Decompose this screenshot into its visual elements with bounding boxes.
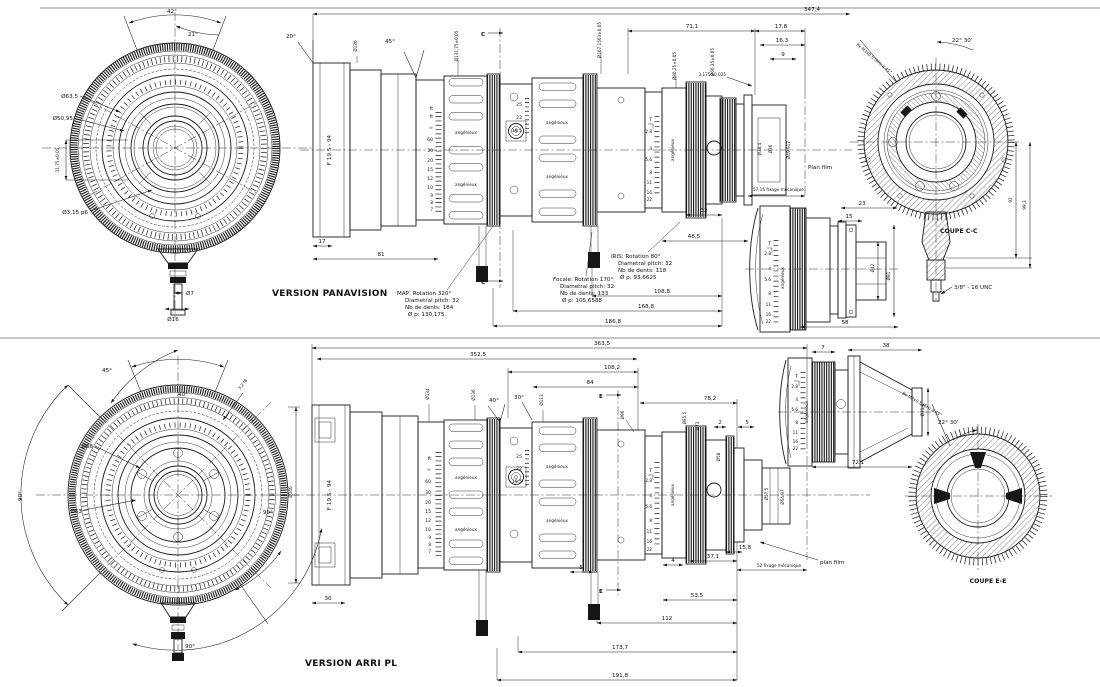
brand-logo: angénieux xyxy=(455,130,478,135)
svg-text:Ø36: Ø36 xyxy=(768,144,773,153)
zoom-ring-windows-b: angénieux angénieux xyxy=(539,427,576,559)
svg-text:92: 92 xyxy=(1008,197,1013,203)
svg-text:ft: ft xyxy=(430,114,434,120)
svg-text:Ø107,1563±0,05: Ø107,1563±0,05 xyxy=(597,22,602,58)
svg-text:30: 30 xyxy=(427,148,433,154)
front-dia-63-5: Ø63,5 xyxy=(61,93,78,100)
svg-text:Diametral pitch: 32: Diametral pitch: 32 xyxy=(560,284,614,290)
svg-text:32: 32 xyxy=(700,208,707,214)
top-dimension-chain: 347,4 71,1 17,8 16,3 9 3,175±0,025 xyxy=(313,7,850,95)
svg-text:5: 5 xyxy=(745,420,749,426)
svg-text:10: 10 xyxy=(425,527,431,533)
svg-text:45°: 45° xyxy=(385,39,395,45)
svg-text:7: 7 xyxy=(430,207,433,212)
svg-text:8: 8 xyxy=(649,518,652,523)
arri-angle-90-bottom: 90° xyxy=(185,644,195,650)
svg-text:20°: 20° xyxy=(286,34,296,40)
svg-text:53,5: 53,5 xyxy=(691,593,704,599)
svg-text:71,1: 71,1 xyxy=(686,24,699,30)
svg-text:8: 8 xyxy=(768,291,771,296)
svg-text:52 fixage mécanique: 52 fixage mécanique xyxy=(757,563,802,568)
svg-text:Ø49,917: Ø49,917 xyxy=(786,141,791,159)
svg-text:4: 4 xyxy=(649,493,652,498)
front-dia-50-95: Ø50,95 xyxy=(53,115,74,122)
front-dia-3-15: Ø3,15 p6 xyxy=(62,209,88,216)
svg-text:12: 12 xyxy=(425,518,431,524)
front-dia-16: Ø16 xyxy=(167,316,179,323)
svg-text:Ø85,5: Ø85,5 xyxy=(682,411,687,424)
svg-text:Ø80,25±0,05: Ø80,25±0,05 xyxy=(672,52,677,80)
svg-text:Ø63: Ø63 xyxy=(70,508,82,515)
svg-text:16: 16 xyxy=(766,312,772,317)
drawing-canvas: 42° 21° Ø63,5 Ø50,95 31,75±0,05 Ø3,15 p6… xyxy=(0,0,1100,687)
plan-film-label: Plan film xyxy=(808,165,832,171)
svg-text:58: 58 xyxy=(841,320,849,326)
svg-text:37,1: 37,1 xyxy=(707,554,720,560)
svg-text:38: 38 xyxy=(882,343,890,349)
svg-text:186,8: 186,8 xyxy=(605,319,621,325)
svg-text:22° 30': 22° 30' xyxy=(952,38,972,44)
svg-text:15: 15 xyxy=(845,214,853,220)
focus-distance-scale-b: ft ∞ 60 30 20 15 12 10 9 8 7 xyxy=(425,456,431,554)
zoom-focal-scale-b: 25 22 19.5 xyxy=(512,450,527,486)
front-angle-21: 21° xyxy=(188,32,198,38)
svg-text:25: 25 xyxy=(516,454,522,460)
svg-text:Ø38,4: Ø38,4 xyxy=(757,142,762,155)
svg-text:22° 30': 22° 30' xyxy=(938,420,958,426)
svg-text:Ø57,5: Ø57,5 xyxy=(764,487,769,500)
svg-text:8: 8 xyxy=(430,200,433,205)
lens-technical-drawing: 42° 21° Ø63,5 Ø50,95 31,75±0,05 Ø3,15 p6… xyxy=(0,0,1100,687)
panavision-front-view: 42° 21° Ø63,5 Ø50,95 31,75±0,05 Ø3,15 p6… xyxy=(42,9,312,323)
svg-text:4: 4 xyxy=(795,397,798,402)
svg-text:Diametral pitch: 32: Diametral pitch: 32 xyxy=(405,298,459,304)
svg-text:30: 30 xyxy=(324,596,332,602)
svg-text:4: 4 xyxy=(768,266,771,271)
svg-text:8: 8 xyxy=(649,170,652,175)
focale-gear-note: Focale: Rotation 170° Diametral pitch: 3… xyxy=(553,232,614,304)
svg-text:9: 9 xyxy=(428,535,431,540)
arri-angle-90-right: 90° xyxy=(263,510,273,516)
front-angle-42: 42° xyxy=(167,9,177,15)
svg-text:10: 10 xyxy=(427,185,433,191)
coupe-e-e-view: 8x M2x0.5 (6H) à 45° 22° 30' COUPE E-E xyxy=(902,391,1053,585)
svg-text:99,3: 99,3 xyxy=(1022,200,1027,210)
iris-gear-note: IRIS: Rotation 80° Diametral pitch: 32 N… xyxy=(611,222,680,281)
svg-text:191,8: 191,8 xyxy=(612,673,628,679)
svg-text:2: 2 xyxy=(718,420,722,426)
svg-text:84: 84 xyxy=(586,380,594,386)
svg-text:plan film: plan film xyxy=(820,560,844,566)
brand-logo: angénieux xyxy=(455,182,478,187)
svg-text:4: 4 xyxy=(671,558,675,564)
svg-text:Ø p: 130,175: Ø p: 130,175 xyxy=(408,311,445,318)
svg-text:C: C xyxy=(481,32,485,38)
svg-text:9: 9 xyxy=(781,52,785,58)
svg-text:22: 22 xyxy=(647,547,653,552)
svg-text:16: 16 xyxy=(647,190,653,195)
svg-text:108,8: 108,8 xyxy=(654,289,670,295)
svg-text:T: T xyxy=(648,468,652,474)
svg-text:112: 112 xyxy=(662,616,673,622)
svg-text:2.8: 2.8 xyxy=(645,129,652,134)
svg-text:9: 9 xyxy=(430,193,433,198)
svg-text:5.6: 5.6 xyxy=(645,157,652,162)
svg-text:30: 30 xyxy=(425,490,431,496)
svg-text:17,8: 17,8 xyxy=(775,24,788,30)
svg-text:22: 22 xyxy=(793,446,799,451)
svg-text:23: 23 xyxy=(858,201,866,207)
svg-text:72,1: 72,1 xyxy=(852,460,865,466)
svg-text:Ø66,35±0,05: Ø66,35±0,05 xyxy=(710,48,715,76)
svg-text:Ø131,75±0,05: Ø131,75±0,05 xyxy=(454,30,459,61)
svg-text:Ø136: Ø136 xyxy=(353,40,358,52)
focus-ring-windows: angénieux angénieux xyxy=(449,79,483,220)
brand-logo: angénieux xyxy=(670,138,675,161)
svg-text:20: 20 xyxy=(425,500,431,506)
svg-text:2.8: 2.8 xyxy=(764,251,771,256)
svg-text:11: 11 xyxy=(647,180,653,185)
svg-text:Ø134: Ø134 xyxy=(425,388,430,400)
svg-text:Diametral pitch: 32: Diametral pitch: 32 xyxy=(618,261,672,267)
svg-text:∞: ∞ xyxy=(427,468,431,473)
brand-logo: angénieux xyxy=(455,475,478,480)
svg-text:22: 22 xyxy=(516,466,522,472)
svg-text:3/8" - 16 UNC: 3/8" - 16 UNC xyxy=(954,285,992,291)
top-dimension-chain-b: 363,5 352,5 108,2 84 78,2 2 5 xyxy=(312,341,807,448)
svg-text:25: 25 xyxy=(516,102,522,108)
brand-logo: angénieux xyxy=(546,174,569,179)
svg-text:E: E xyxy=(599,589,603,595)
arri-rear-detail-view: T 2.8 4 5.6 8 11 16 22 angénieux 7 38 72… xyxy=(778,343,938,468)
svg-text:352,5: 352,5 xyxy=(470,352,486,358)
iris-t-scale-b: T 2.8 4 5.6 8 11 16 22 xyxy=(645,468,653,552)
svg-text:Ø81: Ø81 xyxy=(886,271,891,280)
svg-text:Nb de dents: 133: Nb de dents: 133 xyxy=(560,291,609,297)
svg-text:347,4: 347,4 xyxy=(804,7,820,13)
svg-text:5.6: 5.6 xyxy=(645,504,652,509)
section-e-markers: E E xyxy=(599,390,621,596)
svg-text:8: 8 xyxy=(795,420,798,425)
svg-text:57,15 fixage mécanique: 57,15 fixage mécanique xyxy=(753,187,804,192)
svg-text:IRIS: Rotation 80°: IRIS: Rotation 80° xyxy=(611,254,661,260)
svg-text:22: 22 xyxy=(766,319,772,324)
model-marking: F 19.5 - 94 xyxy=(327,479,333,510)
svg-text:Ø68: Ø68 xyxy=(81,443,93,450)
arri-angle-45: 45° xyxy=(102,368,112,374)
svg-text:MAP: Rotation 320°: MAP: Rotation 320° xyxy=(397,291,452,297)
brand-logo: angénieux xyxy=(546,518,569,523)
svg-text:22: 22 xyxy=(647,197,653,202)
svg-text:Nb de dents: 118: Nb de dents: 118 xyxy=(618,268,667,274)
svg-text:168,8: 168,8 xyxy=(638,304,654,310)
svg-text:48,5: 48,5 xyxy=(688,234,701,240)
svg-text:COUPE E-E: COUPE E-E xyxy=(970,578,1007,585)
svg-text:4: 4 xyxy=(649,146,652,151)
svg-text:COUPE C-C: COUPE C-C xyxy=(940,228,978,235)
svg-text:20: 20 xyxy=(427,158,433,164)
model-marking: F 19.5 - 94 xyxy=(327,134,333,165)
svg-text:ft: ft xyxy=(430,106,434,112)
svg-text:8: 8 xyxy=(428,542,431,547)
svg-text:11: 11 xyxy=(766,302,772,307)
svg-text:T: T xyxy=(794,374,798,380)
svg-text:16: 16 xyxy=(793,439,799,444)
svg-text:Ø96: Ø96 xyxy=(620,410,625,419)
svg-text:363,5: 363,5 xyxy=(594,341,610,347)
arri-side-view: angénieux angénieux angénieux angénieux … xyxy=(290,341,870,680)
svg-text:19.5: 19.5 xyxy=(512,479,522,485)
version-label-panavision: VERSION PANAVISION xyxy=(272,289,388,299)
svg-text:30°: 30° xyxy=(514,395,524,401)
svg-text:173,7: 173,7 xyxy=(612,645,628,651)
svg-text:60: 60 xyxy=(425,479,431,485)
svg-text:15: 15 xyxy=(427,167,433,173)
svg-text:5: 5 xyxy=(579,565,583,571)
focus-ring-windows-b: angénieux angénieux xyxy=(449,424,483,565)
svg-text:angénieux: angénieux xyxy=(780,266,785,289)
svg-text:Ø p: 93,6625: Ø p: 93,6625 xyxy=(620,274,657,281)
svg-text:108,2: 108,2 xyxy=(604,365,620,371)
svg-text:7: 7 xyxy=(428,549,431,554)
front-support-stem xyxy=(158,249,198,315)
version-label-arri: VERSION ARRI PL xyxy=(305,659,397,669)
svg-text:Ø136: Ø136 xyxy=(471,389,476,401)
svg-text:81: 81 xyxy=(377,252,385,258)
svg-text:ft: ft xyxy=(428,456,432,462)
arri-roughness: 3,2 f8 xyxy=(237,378,249,391)
svg-text:11: 11 xyxy=(647,529,653,534)
svg-text:11: 11 xyxy=(793,430,799,435)
svg-text:E: E xyxy=(599,394,603,400)
detail-iris-scale: T 2.8 4 5.6 8 11 16 22 angénieux xyxy=(764,240,785,324)
svg-text:C: C xyxy=(481,280,485,286)
svg-text:2.8: 2.8 xyxy=(645,478,652,483)
brand-logo: angénieux xyxy=(546,120,569,125)
front-dia-7: Ø7 xyxy=(186,290,194,297)
svg-text:Ø113: Ø113 xyxy=(539,394,544,406)
arri-front-view: 45° 40° 3,2 f8 90° 90° 90° Ø68 Ø63 Ø140 xyxy=(18,350,348,682)
svg-text:15,8: 15,8 xyxy=(739,545,752,551)
svg-text:T: T xyxy=(648,117,652,123)
svg-text:Ø73: Ø73 xyxy=(695,421,700,430)
svg-text:12: 12 xyxy=(427,176,433,182)
brand-logo: angénieux xyxy=(670,483,675,506)
front-dim-31-75: 31,75±0,05 xyxy=(55,147,60,172)
svg-text:Ø p: 105,6588: Ø p: 105,6588 xyxy=(562,297,603,304)
panavision-rear-detail-view: T 2.8 4 5.6 8 11 16 22 angénieux 23 15 Ø… xyxy=(745,201,900,332)
svg-text:16: 16 xyxy=(647,539,653,544)
svg-text:Ø140: Ø140 xyxy=(288,486,293,498)
brand-logo: angénieux xyxy=(455,527,478,532)
brand-logo: angénieux xyxy=(546,464,569,469)
svg-text:T: T xyxy=(767,241,771,247)
svg-text:Ø54,97: Ø54,97 xyxy=(780,489,785,505)
svg-text:22: 22 xyxy=(516,115,522,121)
svg-text:Ø42: Ø42 xyxy=(870,263,875,272)
svg-text:angénieux: angénieux xyxy=(804,400,809,423)
svg-text:19.5: 19.5 xyxy=(512,128,522,134)
svg-text:60: 60 xyxy=(427,137,433,143)
svg-text:78,2: 78,2 xyxy=(704,396,716,402)
svg-text:40°: 40° xyxy=(489,398,499,404)
svg-text:∞: ∞ xyxy=(429,126,433,131)
arri-angle-40: 40° xyxy=(178,392,188,398)
gear-drive-stubs-b xyxy=(476,570,600,636)
zoom-ring-windows: angénieux angénieux xyxy=(539,83,576,216)
svg-text:5.6: 5.6 xyxy=(791,407,798,412)
svg-text:Focale: Rotation 170°: Focale: Rotation 170° xyxy=(553,277,613,283)
svg-text:8x M3x0.5 (6H) à 45°: 8x M3x0.5 (6H) à 45° xyxy=(855,42,893,75)
detail-dimensions: 23 15 Ø42 Ø81 58 xyxy=(800,201,898,327)
gear-drive-stubs xyxy=(476,226,600,282)
svg-text:5.6: 5.6 xyxy=(764,277,771,282)
svg-text:Nb de dents: 184: Nb de dents: 184 xyxy=(405,305,454,311)
svg-text:17: 17 xyxy=(318,239,326,245)
iris-t-scale: T 2.8 4 5.6 8 11 16 22 xyxy=(645,117,653,202)
focus-distance-scale: ft ∞ 60 30 20 15 12 10 9 8 7 xyxy=(427,114,433,212)
svg-text:7: 7 xyxy=(821,345,825,351)
svg-text:Ø58: Ø58 xyxy=(716,452,721,461)
svg-text:2.8: 2.8 xyxy=(791,384,798,389)
arri-angle-90-left: 90° xyxy=(18,491,24,501)
svg-text:16,3: 16,3 xyxy=(776,38,789,44)
svg-text:15: 15 xyxy=(425,509,431,515)
coupe-c-c-view: 8x M3x0.5 (6H) à 45° 22° 30' 92 99,3 COU… xyxy=(850,38,1032,301)
